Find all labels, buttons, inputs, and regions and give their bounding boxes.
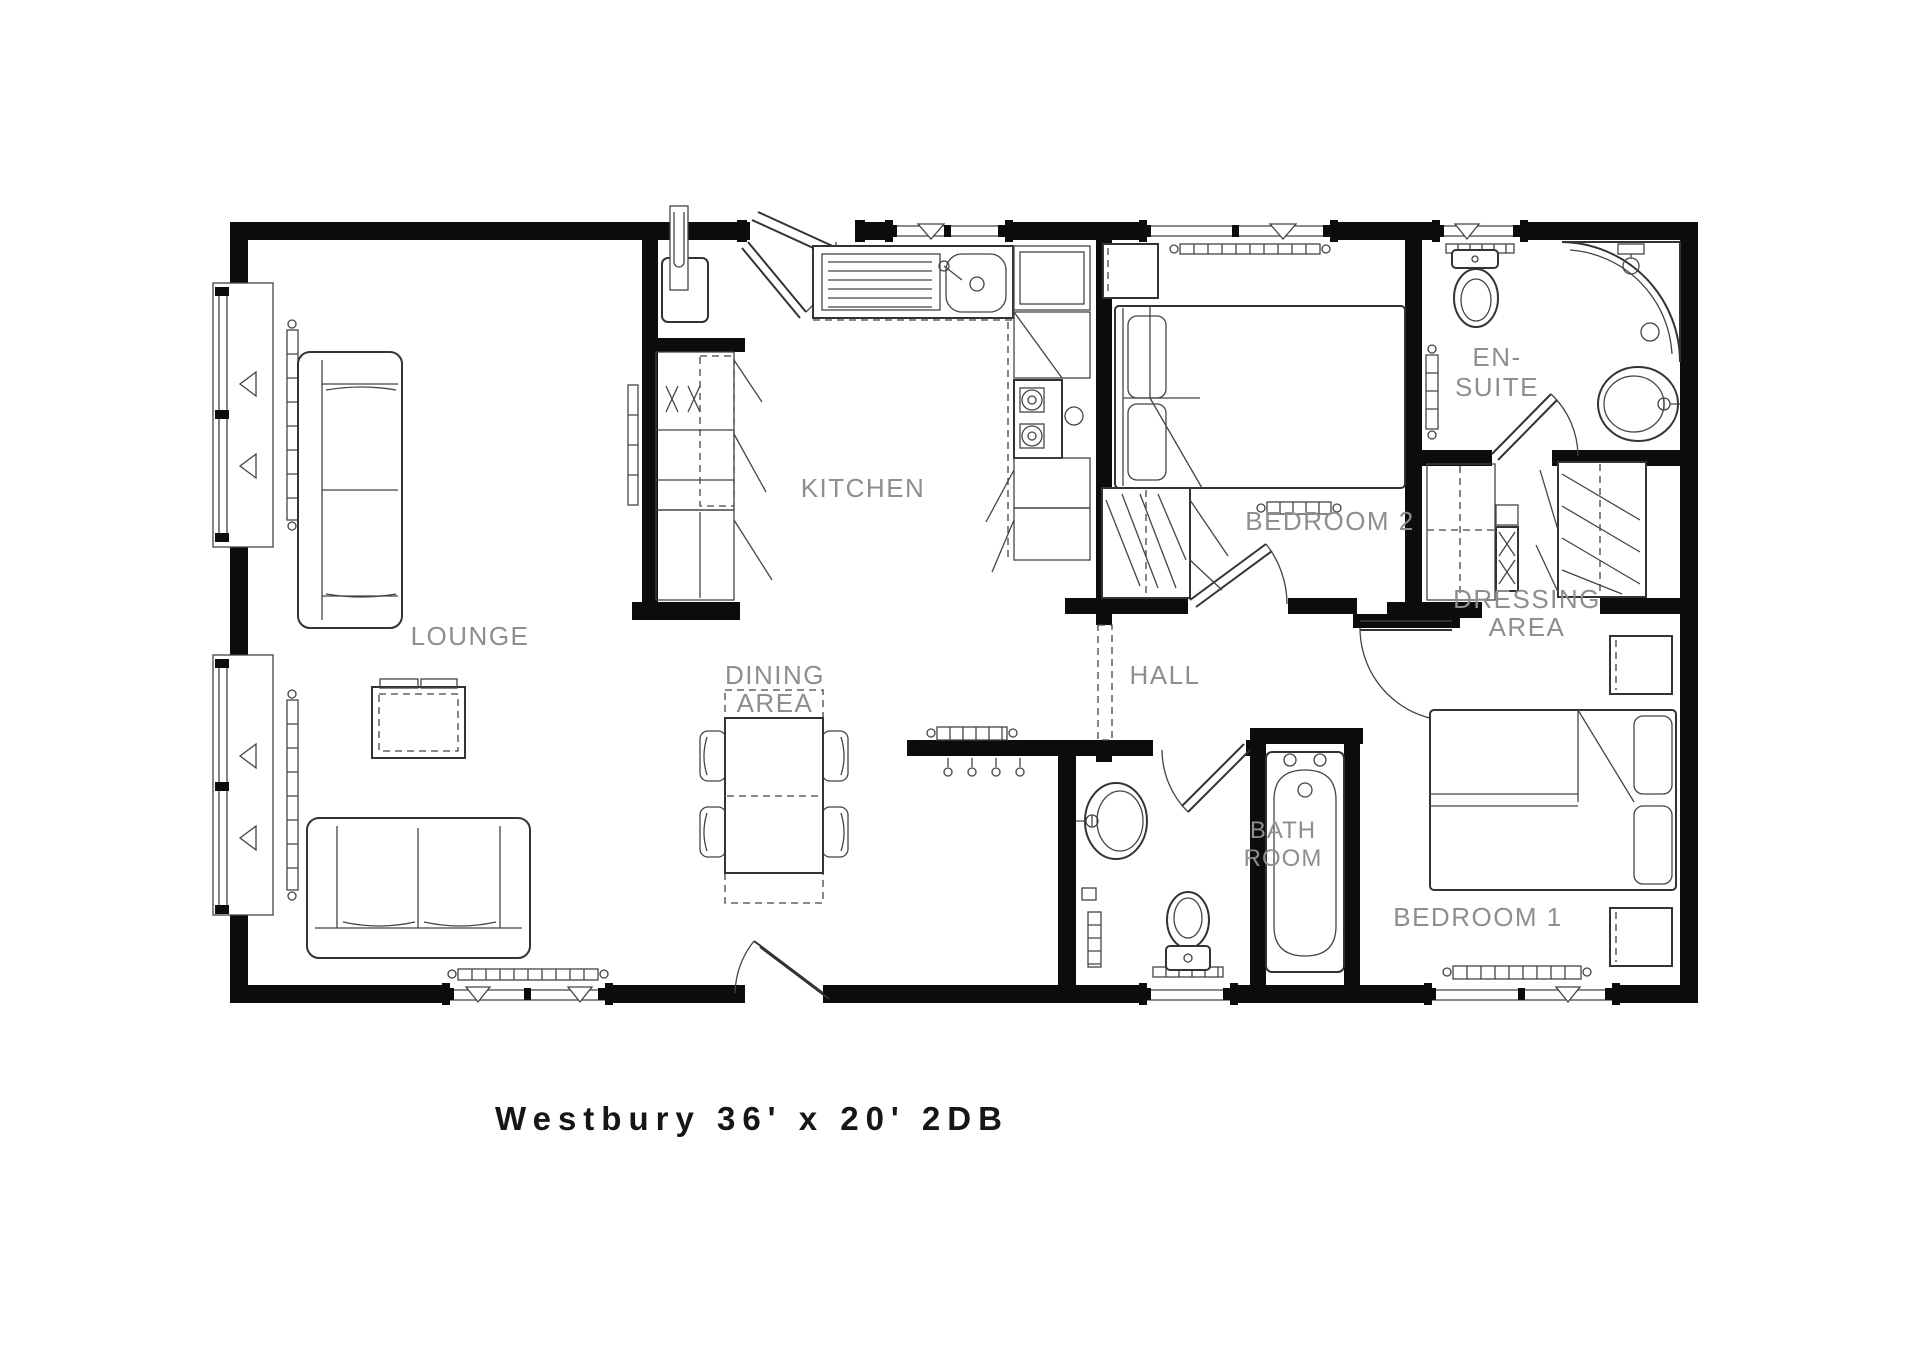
hob bbox=[1014, 380, 1083, 458]
base-cabinets-left bbox=[656, 510, 772, 600]
sink-unit bbox=[813, 246, 1013, 320]
pillow bbox=[1634, 716, 1672, 794]
lounge-window bbox=[442, 969, 613, 1005]
radiator bbox=[287, 320, 298, 530]
lounge: LOUNGE bbox=[298, 352, 638, 958]
dressing-cupboard bbox=[1427, 464, 1518, 600]
lounge-bay-window-2 bbox=[213, 655, 298, 915]
room-label-bedroom2: BEDROOM 2 bbox=[1245, 506, 1415, 536]
utility-cabinet bbox=[656, 352, 766, 510]
room-label-dining-2: AREA bbox=[737, 688, 814, 718]
dining-chair bbox=[822, 731, 848, 781]
wardrobe bbox=[1102, 488, 1228, 598]
bedroom2-window bbox=[1139, 220, 1338, 254]
radiator bbox=[927, 727, 1017, 740]
double-bed bbox=[1115, 306, 1405, 488]
wardrobe bbox=[1536, 462, 1646, 597]
bathroom-window bbox=[1139, 967, 1238, 1005]
flue bbox=[670, 206, 688, 290]
radiator-tv-unit bbox=[628, 385, 638, 505]
curtain-rail bbox=[448, 969, 608, 980]
dining-chair bbox=[700, 807, 726, 857]
coffee-table bbox=[372, 679, 465, 758]
sofa-three-seat bbox=[307, 818, 530, 958]
double-bed bbox=[1430, 710, 1676, 890]
vent-triangle-icon bbox=[1270, 224, 1296, 239]
room-label-bathroom-2: ROOM bbox=[1244, 845, 1323, 872]
room-label-dining-1: DINING bbox=[725, 660, 825, 690]
room-label-lounge: LOUNGE bbox=[411, 621, 530, 651]
isolator-symbols bbox=[666, 386, 700, 412]
bedroom1-door bbox=[1360, 621, 1453, 721]
pillow bbox=[1128, 316, 1166, 398]
room-label-dressing-2: AREA bbox=[1489, 612, 1566, 642]
pillow bbox=[1634, 806, 1672, 884]
room-label-bedroom1: BEDROOM 1 bbox=[1393, 902, 1563, 932]
room-label-ensuite-1: EN- bbox=[1472, 342, 1521, 372]
bedside-table bbox=[1610, 636, 1672, 694]
bedside-table bbox=[1610, 908, 1672, 966]
coat-hooks bbox=[944, 758, 1024, 776]
floorplan-page: LOUNGE DINING AREA bbox=[0, 0, 1920, 1356]
dining-area: DINING AREA bbox=[700, 660, 848, 903]
radiator bbox=[287, 690, 298, 900]
hall-opening-dashed bbox=[1098, 625, 1112, 740]
plan-title: Westbury 36' x 20' 2DB bbox=[495, 1100, 1009, 1137]
sofa-two-seat bbox=[298, 352, 402, 628]
radiator bbox=[1443, 966, 1591, 979]
bedroom1: BEDROOM 1 bbox=[1393, 636, 1676, 966]
wc-room bbox=[1076, 740, 1254, 970]
drain bbox=[1641, 323, 1659, 341]
bedroom1-window bbox=[1424, 966, 1620, 1005]
bedside-table bbox=[1103, 244, 1158, 298]
lounge-bay-window-1 bbox=[213, 283, 298, 547]
toilet bbox=[1452, 250, 1498, 327]
room-label-dressing-1: DRESSING bbox=[1453, 584, 1601, 614]
room-label-ensuite-2: SUITE bbox=[1455, 372, 1539, 402]
floorplan-drawing: LOUNGE DINING AREA bbox=[0, 0, 1920, 1356]
wc-door bbox=[1145, 740, 1254, 812]
basin bbox=[1598, 367, 1680, 441]
rear-door bbox=[735, 941, 831, 1003]
kitchen-window bbox=[885, 220, 1013, 242]
curtain-rail bbox=[1170, 244, 1330, 254]
radiator-vertical bbox=[1426, 345, 1438, 439]
vent-triangle-icon bbox=[1455, 224, 1479, 239]
dining-chair bbox=[822, 807, 848, 857]
dining-chair bbox=[700, 731, 726, 781]
bedroom2-door bbox=[1180, 544, 1296, 614]
ensuite-window bbox=[1432, 220, 1528, 253]
bedroom2: BEDROOM 2 bbox=[1102, 244, 1438, 598]
vent-triangle-icon bbox=[918, 224, 944, 239]
hob-knob bbox=[1065, 407, 1083, 425]
room-label-bathroom-1: BATH bbox=[1250, 817, 1316, 844]
room-label-hall: HALL bbox=[1129, 660, 1200, 690]
kitchen: KITCHEN bbox=[656, 206, 1090, 600]
towel-radiator bbox=[1082, 888, 1101, 967]
basin bbox=[1076, 783, 1147, 859]
room-label-kitchen: KITCHEN bbox=[801, 473, 926, 503]
base-cabinets-right bbox=[986, 458, 1090, 572]
shower bbox=[1562, 242, 1680, 362]
toilet bbox=[1166, 892, 1210, 970]
ensuite: EN- SUITE bbox=[1452, 242, 1680, 466]
